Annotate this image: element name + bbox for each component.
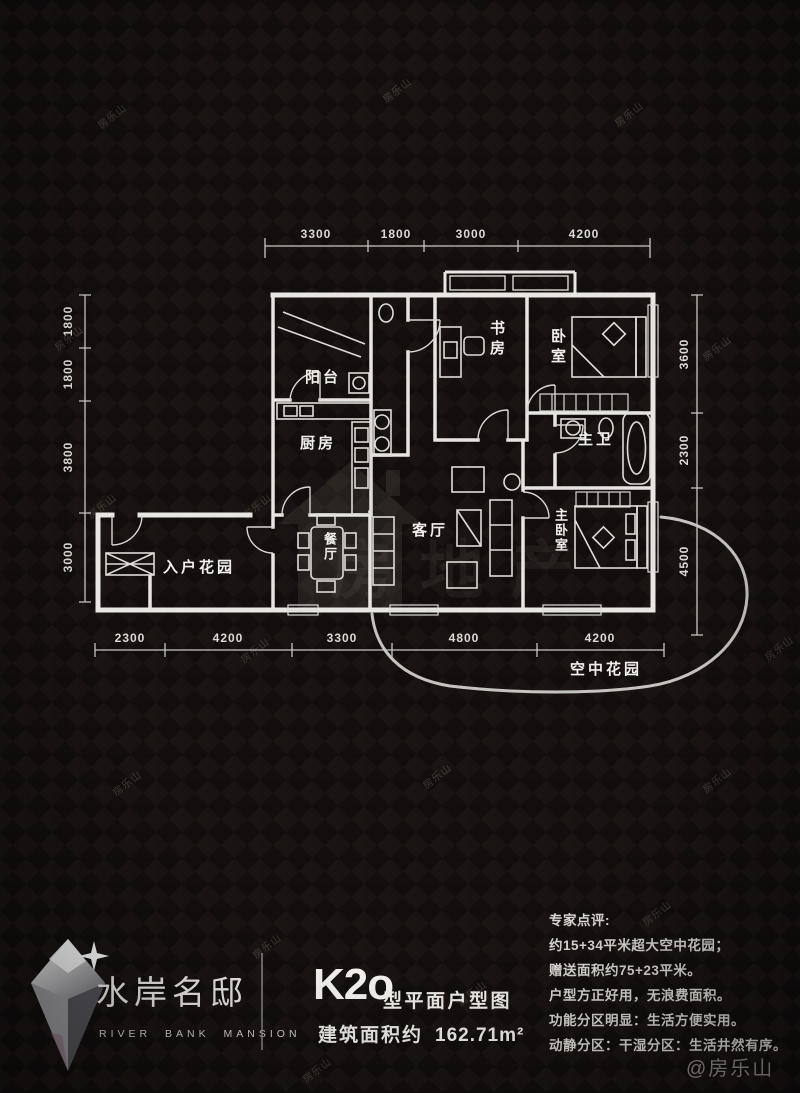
- review-title: 专家点评:: [549, 908, 799, 933]
- footer-divider: [261, 953, 263, 1050]
- review-line: 约15+34平米超大空中花园；: [549, 933, 799, 958]
- wardrobes: [540, 394, 630, 507]
- unit-type-label: 型平面户型图: [383, 986, 512, 1013]
- watermark-handle: @房乐山: [686, 1052, 774, 1081]
- room-label-master-bath: 主卫: [578, 428, 614, 449]
- room-label-sky-garden: 空中花园: [570, 658, 642, 679]
- dim-bottom-0: 2300: [100, 631, 160, 645]
- dim-right-1: 2300: [677, 428, 691, 472]
- floorplan-poster: 房乐山 房乐山 房乐山 房乐山 房乐山 房乐山 房乐山 房乐山 房乐山 房乐山 …: [0, 0, 800, 1093]
- dim-right-0: 3600: [677, 332, 691, 376]
- unit-code: K2o: [313, 960, 393, 1010]
- dim-top-3: 4200: [554, 227, 614, 241]
- dim-left-2: 3800: [61, 435, 75, 479]
- review-line: 户型方正好用，无浪费面积。: [549, 983, 799, 1008]
- dim-top-2: 3000: [441, 227, 501, 241]
- center-watermark-house-icon: [278, 462, 422, 610]
- expert-review: 专家点评: 约15+34平米超大空中花园； 赠送面积约75+23平米。 户型方正…: [549, 908, 799, 1058]
- area-label: 建筑面积约: [318, 1025, 423, 1046]
- room-label-dining: 餐厅: [320, 532, 339, 562]
- parapet: [445, 272, 575, 295]
- room-label-master-bedroom: 主卧室: [551, 508, 570, 553]
- area-value: 162.71m²: [435, 1025, 524, 1046]
- dim-bottom-3: 4800: [434, 631, 494, 645]
- dim-bottom-4: 4200: [570, 631, 630, 645]
- room-label-study: 书房: [486, 320, 507, 360]
- review-line: 功能分区明显：生活方便实用。: [549, 1008, 799, 1033]
- dim-left-3: 3000: [61, 535, 75, 579]
- dim-top-1: 1800: [366, 227, 426, 241]
- dim-bottom-1: 4200: [198, 631, 258, 645]
- dim-left-1: 1800: [61, 352, 75, 396]
- review-line: 赠送面积约75+23平米。: [549, 958, 799, 983]
- dim-top-0: 3300: [286, 227, 346, 241]
- dim-right-2: 4500: [677, 539, 691, 583]
- room-label-kitchen: 厨房: [300, 432, 336, 453]
- room-label-bedroom: 卧室: [547, 328, 568, 368]
- room-label-entry-garden: 入户花园: [163, 556, 235, 577]
- brand-name-en: RIVER BANK MANSION: [99, 1028, 301, 1040]
- area-row: 建筑面积约162.71m²: [318, 1020, 524, 1047]
- dim-bottom-2: 3300: [312, 631, 372, 645]
- dim-left-0: 1800: [61, 299, 75, 343]
- brand-name-cn: 水岸名邸: [96, 966, 248, 1014]
- room-label-living: 客厅: [412, 519, 448, 540]
- room-label-balcony: 阳台: [305, 366, 341, 387]
